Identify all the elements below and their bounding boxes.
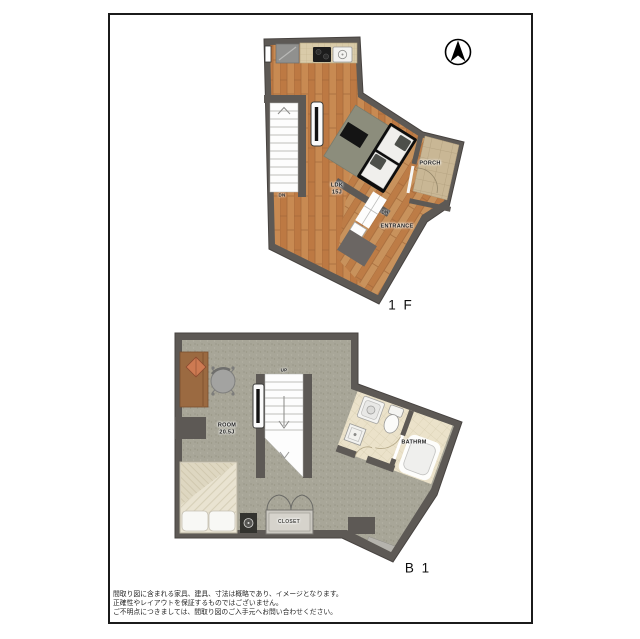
wall-heater-1f xyxy=(311,102,323,146)
speaker xyxy=(240,513,257,533)
wall-stub xyxy=(348,517,375,534)
kitchen-window xyxy=(265,46,271,62)
disclaimer-line-1: 間取り図に含まれる家具、建具、寸法は概略であり、イメージとなります。 xyxy=(113,591,343,600)
ldk-size: 15J xyxy=(331,189,343,196)
stairs-up-label: UP xyxy=(281,368,288,373)
room-name: ROOM xyxy=(218,422,236,429)
floor-1f-title: 1 F xyxy=(388,298,414,313)
disclaimer-line-3: ご不明点につきましては、間取り図のご入手元へお問い合わせください。 xyxy=(113,609,343,618)
north-arrow-compass-icon xyxy=(446,40,471,65)
floor-b1-plan xyxy=(170,330,470,570)
staircase-1f xyxy=(264,95,306,197)
wall-heater-b1 xyxy=(253,384,264,428)
ldk-room-label: LDK 15J xyxy=(331,182,343,195)
wall-stub xyxy=(175,417,206,439)
disclaimer-text: 間取り図に含まれる家具、建具、寸法は概略であり、イメージとなります。 正確性やレ… xyxy=(113,591,343,618)
floor-b1-title: B 1 xyxy=(405,561,431,576)
bathroom-label: BATHRM xyxy=(401,440,426,447)
kitchen-sink xyxy=(333,47,352,62)
pillow xyxy=(182,511,208,531)
closet-label: CLOSET xyxy=(278,519,300,525)
ldk-name: LDK xyxy=(331,182,343,189)
bed xyxy=(180,462,237,533)
kitchen-counter xyxy=(265,43,357,63)
stairs-dn-label: DN xyxy=(279,193,286,198)
porch-label: PORCH xyxy=(419,161,440,168)
room-b1-label: ROOM 20.5J xyxy=(218,422,236,435)
floorplan-page: { "document": { "type": "real-estate-flo… xyxy=(0,0,640,639)
floor-1f-plan xyxy=(255,30,475,320)
room-size: 20.5J xyxy=(218,429,236,436)
floorplan-graphic xyxy=(0,0,640,639)
entrance-label: ENTRANCE xyxy=(381,224,414,231)
stove xyxy=(313,47,331,62)
disclaimer-line-2: 正確性やレイアウトを保証するものではございません。 xyxy=(113,600,343,609)
desk xyxy=(180,352,208,407)
entrance-dn-label: DN xyxy=(382,210,389,215)
pillow xyxy=(209,511,235,531)
